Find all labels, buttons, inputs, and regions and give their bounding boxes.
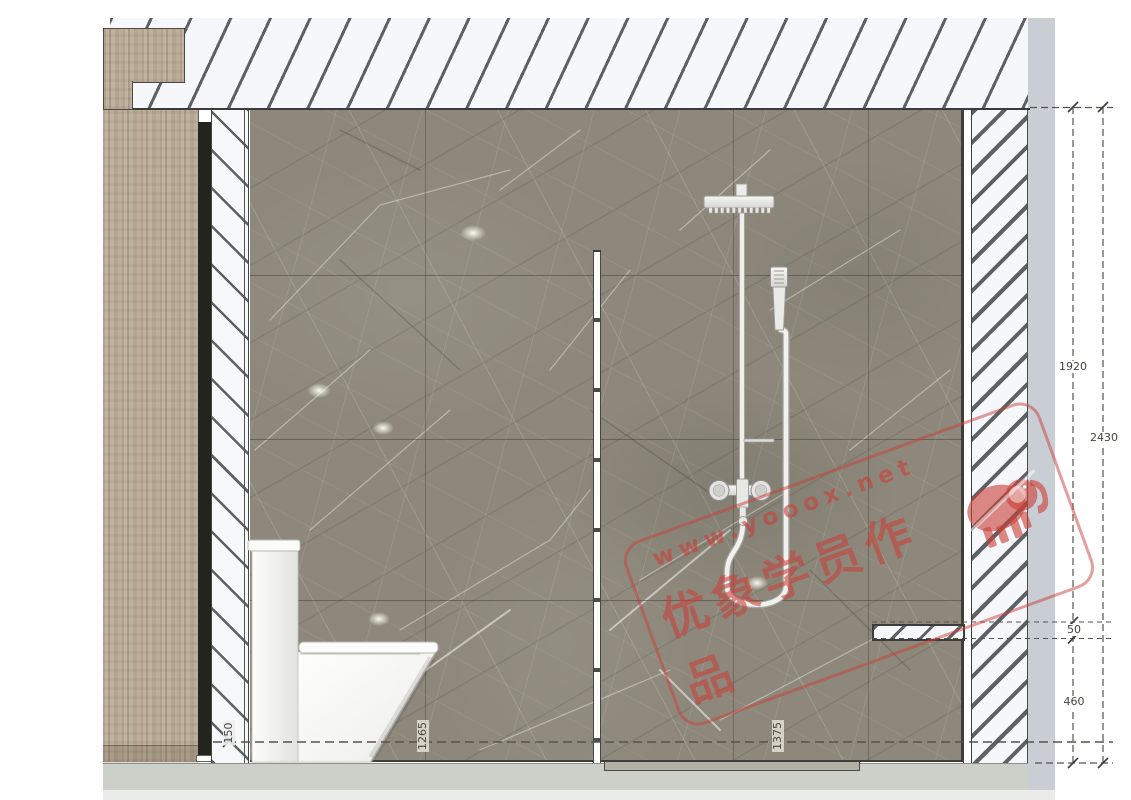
dim-label-1265: 1265 [417, 720, 429, 752]
dim-label-150: 150 [223, 721, 235, 746]
dim-label-50: 50 [1065, 624, 1083, 636]
dim-label-2430: 2430 [1088, 432, 1120, 444]
dim-label-1375: 1375 [772, 720, 784, 752]
elevation-drawing: 1920 2430 50 460 150 1265 1375 www.yooox… [0, 0, 1131, 800]
dim-label-1920: 1920 [1057, 361, 1089, 373]
dimension-lines [0, 0, 1131, 800]
dim-label-460: 460 [1062, 696, 1087, 708]
elephant-logo-icon [947, 449, 1068, 571]
